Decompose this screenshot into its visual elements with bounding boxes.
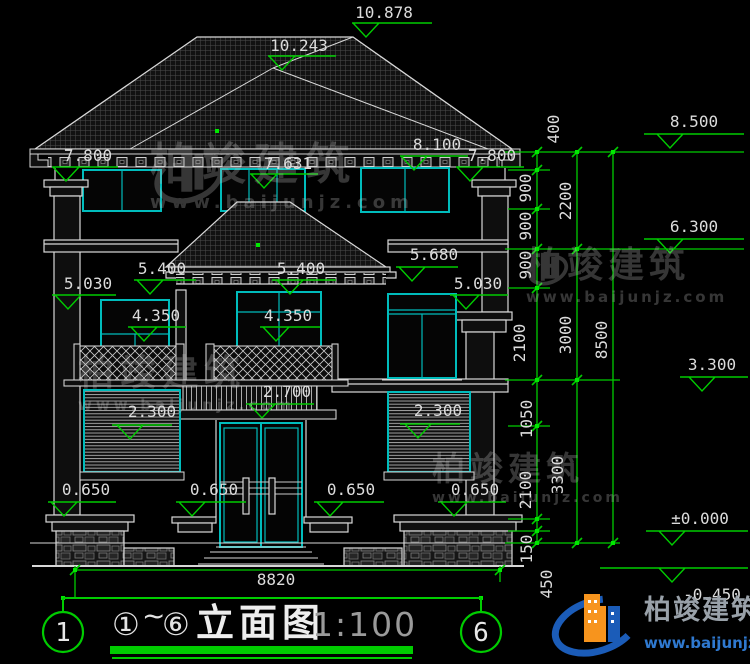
watermark-brand: 柏竣建筑 [432, 442, 623, 490]
axis-bubble-right: 6 [473, 618, 489, 648]
watermark-logo-icon [526, 236, 570, 298]
company-logo-icon [548, 576, 644, 664]
watermark-block: 柏竣建筑 www.baijunjz.com [432, 442, 623, 506]
title-text: 立面图 [196, 604, 325, 642]
axis-bubble-left: 1 [55, 618, 71, 648]
title-range-end: ⑥ [162, 610, 190, 641]
cad-elevation-canvas: 柏竣建筑 www.baijunjz.com 柏竣建筑 www.baijunjz.… [0, 0, 750, 664]
elevation-drawing [0, 0, 750, 664]
entrance-door [220, 423, 302, 547]
watermark-logo-icon [150, 128, 228, 216]
company-logo: 柏竣建筑 www.baijunjz.com [548, 576, 750, 664]
watermark-block: 柏竣建筑 www.baijunjz.com [78, 344, 295, 414]
company-logo-brand: 柏竣建筑 [644, 588, 750, 627]
company-logo-url: www.baijunjz.com [644, 634, 750, 652]
title-scale: 1:100 [312, 608, 417, 641]
title-underline-thick [110, 646, 413, 654]
watermark-brand: 柏竣建筑 [78, 344, 295, 396]
title-range-start: ① [112, 610, 140, 641]
watermark-block: 柏竣建筑 www.baijunjz.com [526, 236, 727, 306]
watermark-block: 柏竣建筑 www.baijunjz.com [150, 128, 414, 213]
watermark-url: www.baijunjz.com [78, 396, 295, 414]
watermark-url: www.baijunjz.com [432, 490, 623, 506]
title-underline-thin [112, 657, 412, 659]
